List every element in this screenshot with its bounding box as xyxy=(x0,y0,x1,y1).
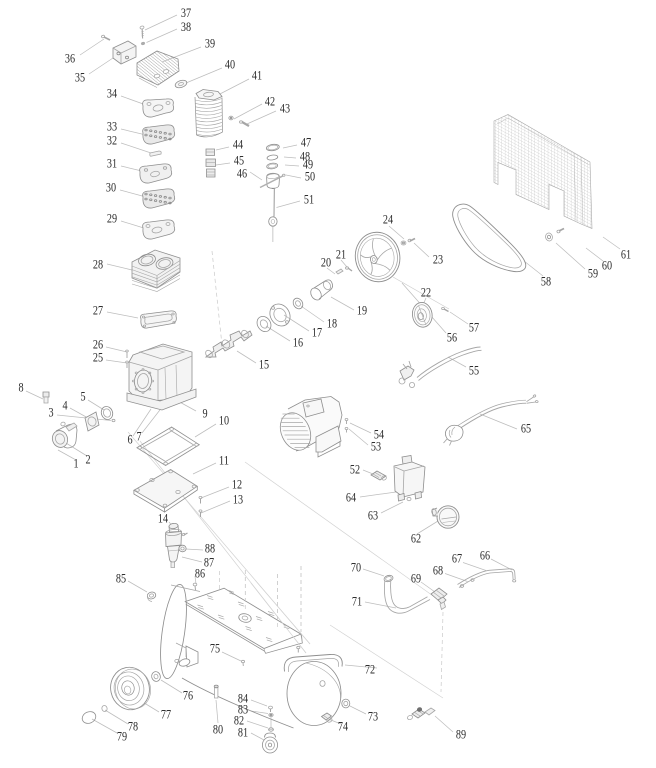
svg-text:51: 51 xyxy=(304,193,314,207)
svg-text:29: 29 xyxy=(107,212,117,226)
svg-text:71: 71 xyxy=(352,595,362,609)
svg-text:15: 15 xyxy=(259,358,269,372)
svg-text:81: 81 xyxy=(238,726,248,740)
svg-text:43: 43 xyxy=(280,102,290,116)
svg-text:33: 33 xyxy=(107,120,117,134)
svg-text:76: 76 xyxy=(183,689,194,703)
svg-text:13: 13 xyxy=(233,493,243,507)
svg-text:23: 23 xyxy=(433,253,443,267)
svg-text:65: 65 xyxy=(521,422,531,436)
svg-text:14: 14 xyxy=(158,512,169,526)
svg-text:80: 80 xyxy=(213,723,223,737)
svg-text:9: 9 xyxy=(202,407,207,421)
svg-text:41: 41 xyxy=(252,69,262,83)
svg-text:22: 22 xyxy=(421,286,431,300)
svg-text:30: 30 xyxy=(106,181,116,195)
svg-text:6: 6 xyxy=(127,433,133,447)
svg-text:2: 2 xyxy=(85,453,90,467)
svg-text:47: 47 xyxy=(301,136,312,150)
svg-text:25: 25 xyxy=(93,351,103,365)
svg-text:39: 39 xyxy=(205,37,215,51)
svg-text:53: 53 xyxy=(371,440,381,454)
svg-text:31: 31 xyxy=(107,157,117,171)
svg-text:34: 34 xyxy=(107,87,118,101)
svg-text:35: 35 xyxy=(75,71,85,85)
svg-text:17: 17 xyxy=(312,326,323,340)
svg-text:86: 86 xyxy=(195,567,206,581)
svg-text:57: 57 xyxy=(469,321,480,335)
svg-text:44: 44 xyxy=(233,138,244,152)
svg-text:36: 36 xyxy=(65,52,76,66)
svg-text:32: 32 xyxy=(107,134,117,148)
svg-text:27: 27 xyxy=(93,304,104,318)
svg-text:79: 79 xyxy=(117,730,127,744)
svg-text:67: 67 xyxy=(452,552,463,566)
svg-text:7: 7 xyxy=(136,430,142,444)
svg-text:19: 19 xyxy=(357,304,367,318)
svg-text:68: 68 xyxy=(433,564,443,578)
svg-text:16: 16 xyxy=(293,336,304,350)
svg-text:3: 3 xyxy=(48,406,53,420)
svg-text:58: 58 xyxy=(541,275,551,289)
svg-text:70: 70 xyxy=(351,561,361,575)
svg-text:18: 18 xyxy=(327,317,337,331)
svg-text:56: 56 xyxy=(447,331,458,345)
svg-text:74: 74 xyxy=(338,720,349,734)
svg-text:64: 64 xyxy=(346,491,357,505)
svg-text:28: 28 xyxy=(93,258,103,272)
svg-text:12: 12 xyxy=(232,478,242,492)
svg-text:73: 73 xyxy=(368,710,378,724)
svg-text:10: 10 xyxy=(219,414,229,428)
svg-text:55: 55 xyxy=(469,364,479,378)
svg-text:24: 24 xyxy=(383,213,394,227)
svg-text:52: 52 xyxy=(350,463,360,477)
svg-text:42: 42 xyxy=(265,95,275,109)
svg-text:72: 72 xyxy=(365,663,375,677)
svg-text:62: 62 xyxy=(411,532,421,546)
svg-text:89: 89 xyxy=(456,728,466,742)
svg-text:88: 88 xyxy=(205,542,215,556)
svg-text:69: 69 xyxy=(411,572,421,586)
svg-text:75: 75 xyxy=(210,642,220,656)
svg-text:77: 77 xyxy=(161,708,172,722)
svg-text:5: 5 xyxy=(80,390,85,404)
svg-text:4: 4 xyxy=(62,399,68,413)
svg-text:46: 46 xyxy=(237,167,248,181)
svg-text:61: 61 xyxy=(621,248,631,262)
svg-text:40: 40 xyxy=(225,58,235,72)
svg-text:21: 21 xyxy=(336,248,346,262)
svg-text:87: 87 xyxy=(204,556,215,570)
svg-text:59: 59 xyxy=(588,267,598,281)
svg-text:85: 85 xyxy=(116,572,126,586)
svg-text:60: 60 xyxy=(602,259,612,273)
svg-text:26: 26 xyxy=(93,338,104,352)
svg-text:20: 20 xyxy=(321,256,331,270)
svg-text:11: 11 xyxy=(219,454,229,468)
svg-text:8: 8 xyxy=(18,381,23,395)
svg-text:78: 78 xyxy=(128,720,138,734)
svg-text:66: 66 xyxy=(480,549,491,563)
svg-text:45: 45 xyxy=(234,154,244,168)
svg-text:38: 38 xyxy=(181,20,191,34)
svg-text:50: 50 xyxy=(305,170,315,184)
svg-text:63: 63 xyxy=(368,509,378,523)
svg-text:1: 1 xyxy=(73,457,78,471)
svg-text:37: 37 xyxy=(181,6,192,20)
